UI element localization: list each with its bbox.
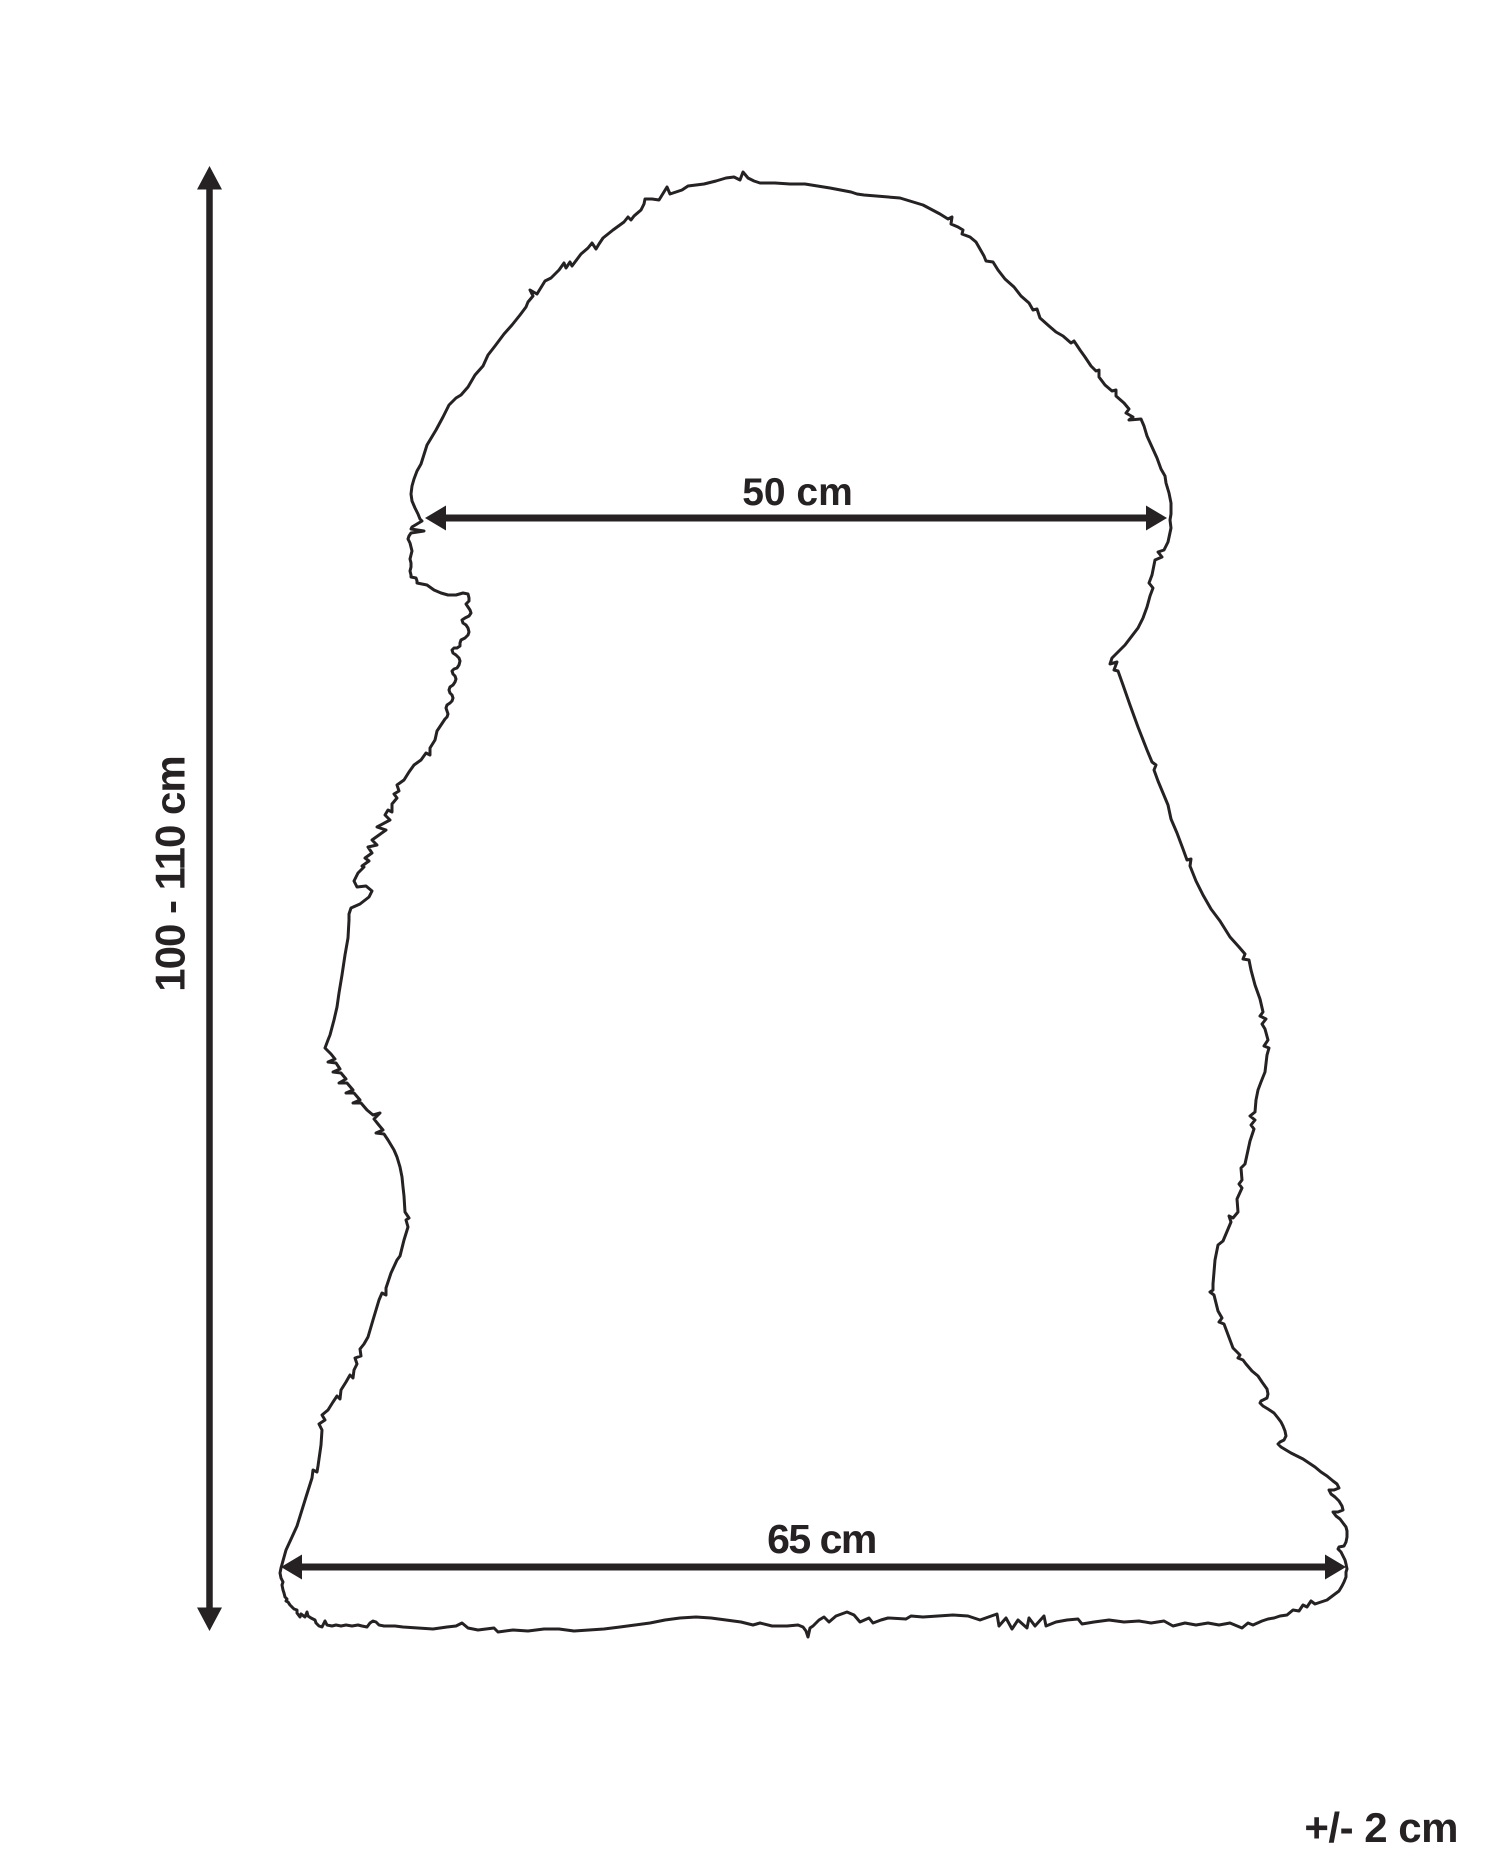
svg-text:100 - 110 cm: 100 - 110 cm [147,756,194,992]
svg-text:+/- 2 cm: +/- 2 cm [1304,1804,1458,1851]
svg-text:50 cm: 50 cm [742,471,853,514]
svg-text:65 cm: 65 cm [767,1516,876,1562]
